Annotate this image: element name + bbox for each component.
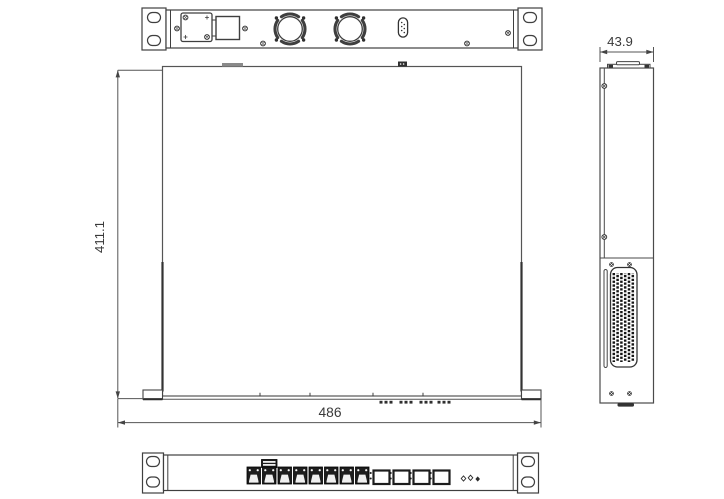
arrow-icon <box>118 420 125 424</box>
front-panel-view <box>143 453 539 493</box>
sfp-cage <box>414 471 430 485</box>
screw-icon <box>609 391 614 396</box>
side-view: 43.9 <box>600 34 654 407</box>
dimension-height: 43.9 <box>600 34 654 62</box>
port-footprint <box>438 401 451 404</box>
arrow-icon <box>600 50 607 54</box>
arrow-icon <box>534 420 541 424</box>
top-chassis-outline <box>163 67 522 397</box>
screw-icon <box>609 262 614 267</box>
screw-icon <box>506 31 511 36</box>
rj45-port <box>309 467 323 484</box>
stacked-module <box>262 460 278 468</box>
ear-flange-left <box>143 390 163 399</box>
rj45-port <box>247 467 261 484</box>
port-footprint <box>400 401 413 404</box>
mounting-hole <box>147 477 160 487</box>
lid-tab <box>222 63 243 67</box>
sfp-cage <box>434 471 450 485</box>
vent-grille <box>611 268 638 368</box>
arrow-icon <box>116 391 120 398</box>
port-footprint <box>380 401 393 404</box>
mounting-hole <box>522 457 535 467</box>
screw-icon <box>261 41 266 46</box>
ear-flange-right <box>522 390 542 399</box>
port-footprint <box>420 401 433 404</box>
rear-panel-view <box>142 8 542 50</box>
technical-drawing-canvas: 411.1 486 43.9 <box>0 0 724 499</box>
top-connector <box>398 62 407 67</box>
mounting-hole <box>524 36 537 46</box>
bottom-foot <box>618 403 635 407</box>
serial-port-icon <box>398 18 407 37</box>
mounting-hole <box>522 477 535 487</box>
stacked-module-slot <box>263 461 276 463</box>
dimension-depth-label: 411.1 <box>92 221 107 253</box>
dimension-height-label: 43.9 <box>607 34 633 49</box>
dimension-depth: 411.1 <box>92 70 163 398</box>
arrow-icon <box>116 70 120 77</box>
screw-icon <box>602 84 607 89</box>
arrow-icon <box>646 50 653 54</box>
dimension-width: 486 <box>118 399 541 428</box>
screw-icon <box>627 391 632 396</box>
screw-icon <box>465 41 470 46</box>
sfp-port-row <box>370 471 450 485</box>
rj45-port <box>356 467 370 484</box>
power-inlet <box>216 17 240 40</box>
rj45-port <box>294 467 308 484</box>
rj45-port <box>325 467 339 484</box>
screw-icon <box>243 26 248 31</box>
stacked-module-slot <box>263 464 276 466</box>
screw-icon <box>602 235 607 240</box>
dimension-width-label: 486 <box>318 405 341 420</box>
mounting-hole <box>148 13 161 23</box>
mounting-hole <box>147 457 160 467</box>
side-slot <box>604 270 607 368</box>
rj45-port <box>263 467 277 484</box>
rj45-port <box>340 467 354 484</box>
sfp-cage <box>394 471 410 485</box>
screw-icon <box>175 26 180 31</box>
sfp-cage <box>374 471 390 485</box>
screw-icon <box>183 15 188 20</box>
mounting-hole <box>148 36 161 46</box>
mounting-hole <box>524 13 537 23</box>
screw-icon <box>205 35 210 40</box>
rj45-port <box>278 467 292 484</box>
top-view <box>143 62 541 404</box>
top-handle-profile <box>608 62 651 68</box>
screw-icon <box>627 262 632 267</box>
